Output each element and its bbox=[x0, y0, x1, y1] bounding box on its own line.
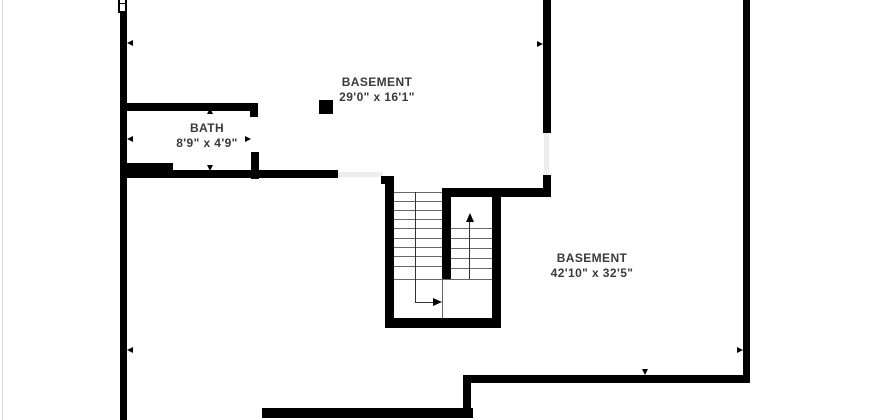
floor-plan: BASEMENT 29'0" x 16'1" BATH 8'9" x 4'9" … bbox=[0, 0, 870, 420]
opening-hall-threshold bbox=[338, 172, 383, 177]
stair-tread bbox=[451, 258, 492, 259]
window-icon bbox=[118, 0, 127, 13]
wall-left-exterior bbox=[120, 13, 127, 420]
stair-landing-line bbox=[394, 279, 492, 280]
wall-stair-right bbox=[492, 188, 501, 328]
dimension-arrow-icon bbox=[737, 347, 743, 353]
stair-tread bbox=[394, 201, 442, 202]
room-name: BATH bbox=[176, 121, 238, 136]
stair-tread bbox=[451, 228, 492, 229]
room-label-basement-lower: BASEMENT 42'10" x 32'5" bbox=[551, 251, 634, 281]
wall-bottom-right bbox=[463, 375, 750, 383]
wall-right-exterior bbox=[743, 0, 750, 383]
wall-bath-bottom bbox=[127, 170, 338, 178]
stair-tread bbox=[394, 256, 442, 257]
room-dimensions: 8'9" x 4'9" bbox=[176, 136, 238, 151]
wall-mid-upper bbox=[543, 0, 551, 133]
stair-tread bbox=[394, 210, 442, 211]
stair-tread bbox=[451, 248, 492, 249]
room-dimensions: 42'10" x 32'5" bbox=[551, 266, 634, 281]
room-dimensions: 29'0" x 16'1" bbox=[339, 90, 415, 105]
stair-upline bbox=[469, 221, 470, 279]
stair-down-arrow-icon bbox=[433, 298, 442, 306]
room-label-basement-upper: BASEMENT 29'0" x 16'1" bbox=[339, 75, 415, 105]
stair-tread bbox=[394, 192, 442, 193]
dimension-arrow-icon bbox=[127, 40, 133, 46]
wall-stair-divider bbox=[442, 188, 451, 279]
dimension-arrow-icon bbox=[207, 108, 213, 114]
stair-tread bbox=[394, 247, 442, 248]
dimension-arrow-icon bbox=[127, 136, 133, 142]
room-name: BASEMENT bbox=[551, 251, 634, 266]
window-pane-line bbox=[120, 3, 125, 4]
stair-up-arrow-icon bbox=[466, 213, 474, 222]
wall-bottom-left bbox=[262, 408, 473, 418]
wall-bath-top bbox=[127, 103, 258, 111]
stair-tread bbox=[394, 266, 442, 267]
wall-bath-door-stub bbox=[250, 103, 258, 117]
stair-tread bbox=[451, 238, 492, 239]
dimension-arrow-icon bbox=[127, 347, 133, 353]
dimension-arrow-icon bbox=[537, 41, 543, 47]
stair-tread bbox=[394, 238, 442, 239]
stair-tread bbox=[394, 219, 442, 220]
column-marker-icon bbox=[319, 100, 333, 114]
room-label-bath: BATH 8'9" x 4'9" bbox=[176, 121, 238, 151]
opening-mid-threshold bbox=[544, 133, 549, 175]
dimension-arrow-icon bbox=[245, 136, 251, 142]
wall-stair-left bbox=[385, 176, 394, 326]
stair-divider-line bbox=[442, 279, 443, 318]
dimension-arrow-icon bbox=[207, 165, 213, 171]
stair-walkline-horizontal bbox=[415, 302, 435, 303]
stair-tread bbox=[394, 228, 442, 229]
wall-stair-top bbox=[442, 188, 551, 197]
page-edge-line bbox=[2, 0, 3, 420]
room-name: BASEMENT bbox=[339, 75, 415, 90]
wall-stair-bottom bbox=[385, 318, 501, 328]
dimension-arrow-icon bbox=[642, 369, 648, 375]
stair-walkline-vertical bbox=[415, 192, 416, 303]
stair-tread bbox=[451, 268, 492, 269]
